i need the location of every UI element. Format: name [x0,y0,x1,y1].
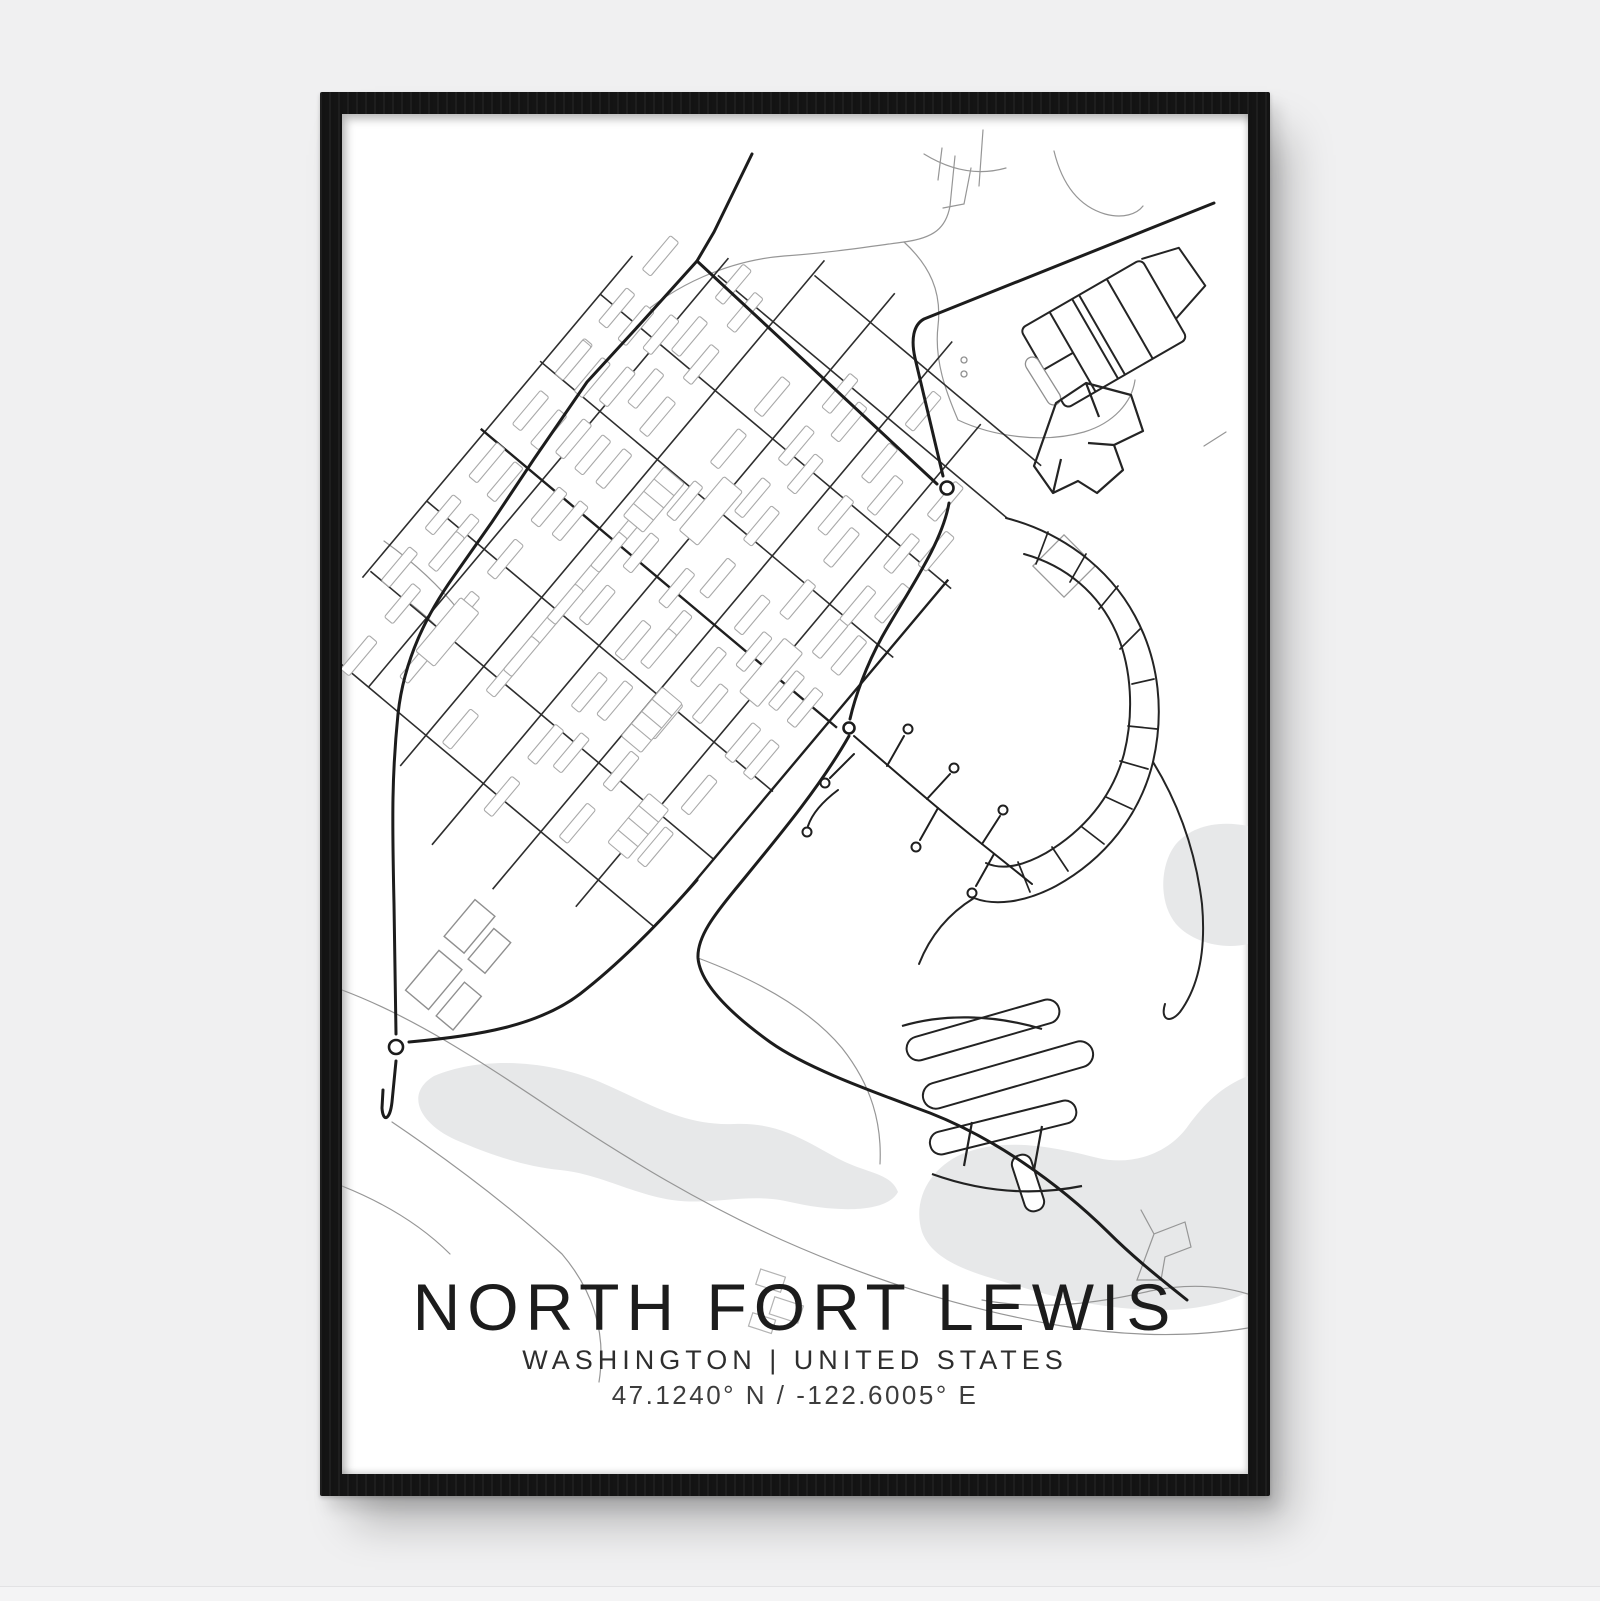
map-poster: NORTH FORT LEWIS WASHINGTON | UNITED STA… [342,114,1248,1474]
backdrop-seam [0,1586,1600,1601]
roundabouts [389,482,954,1055]
junction-center [844,723,855,734]
buildings [342,197,1018,929]
west-buildings [402,900,527,1030]
roundabout-west [389,1040,403,1054]
poster-frame: NORTH FORT LEWIS WASHINGTON | UNITED STA… [320,92,1270,1496]
south-parcels [743,1269,810,1340]
roundabout-northeast [941,482,954,495]
street-map [342,114,1248,1474]
cul-de-sac-ends [803,725,1008,898]
